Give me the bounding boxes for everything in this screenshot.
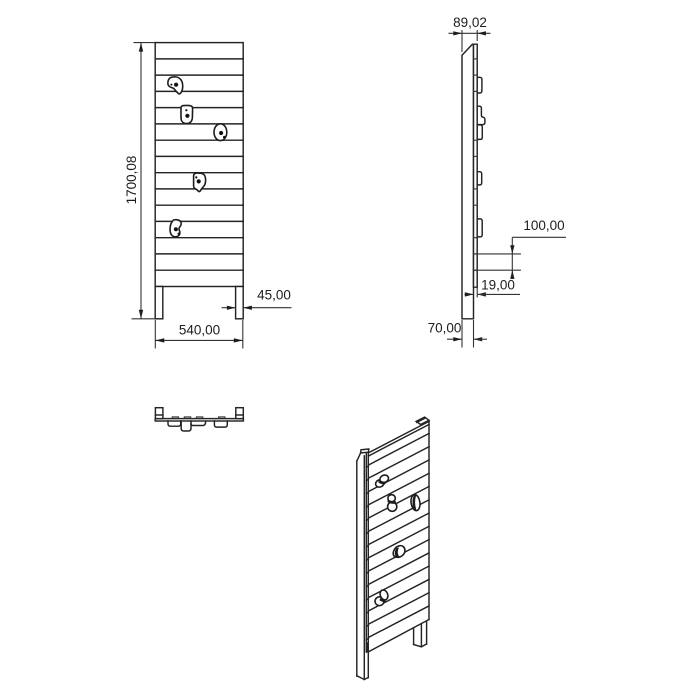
svg-text:45,00: 45,00: [257, 288, 291, 303]
svg-text:19,00: 19,00: [481, 278, 515, 293]
svg-text:89,02: 89,02: [453, 15, 487, 30]
svg-text:1700,08: 1700,08: [124, 156, 139, 205]
svg-text:100,00: 100,00: [523, 218, 564, 233]
svg-text:540,00: 540,00: [179, 323, 220, 338]
svg-text:70,00: 70,00: [428, 321, 462, 336]
